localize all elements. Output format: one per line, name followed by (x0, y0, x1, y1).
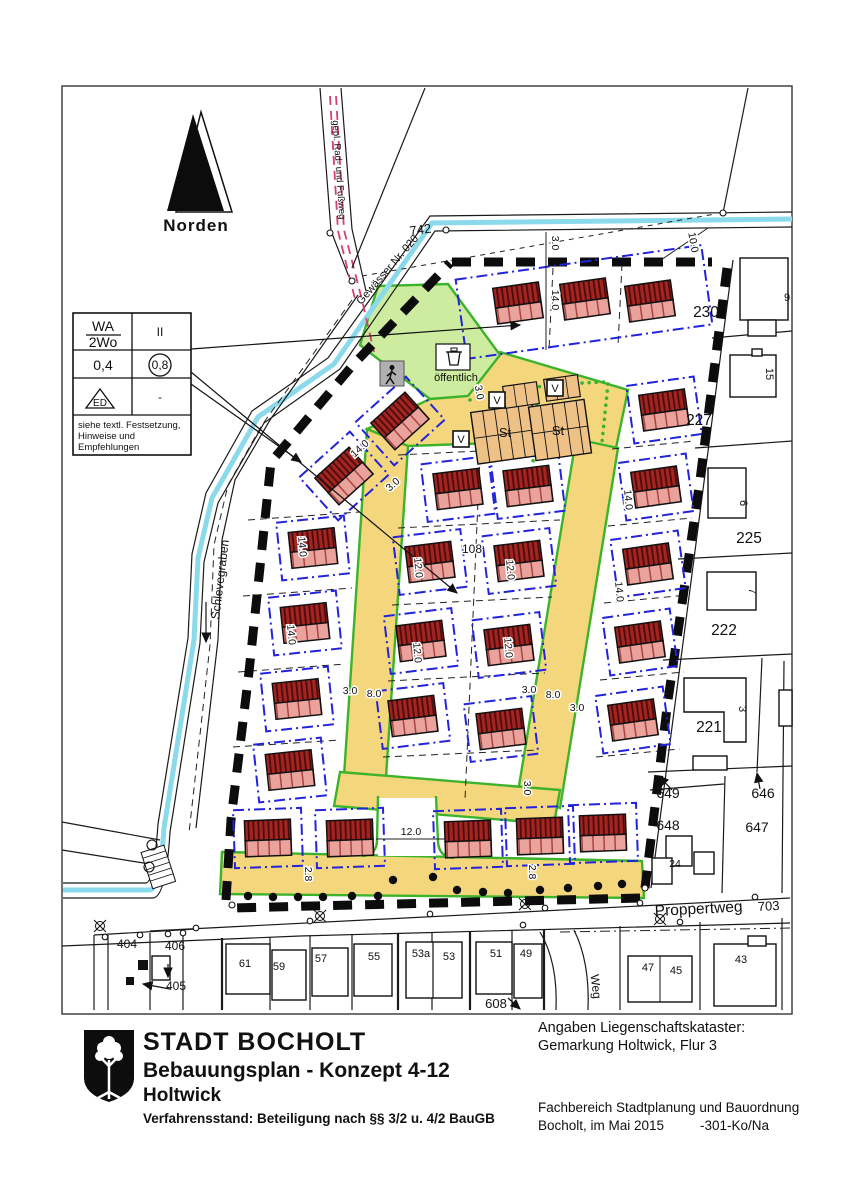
house-number-47: 47 (642, 962, 654, 974)
legend-2wo: 2Wo (89, 334, 118, 350)
planned-house (433, 468, 483, 509)
house-number-49: 49 (520, 948, 532, 960)
house-number-53a: 53a (412, 948, 431, 960)
city-coat-of-arms (84, 1030, 134, 1102)
svg-text:14.0: 14.0 (284, 624, 298, 646)
planned-house (244, 819, 291, 857)
svg-text:3.0: 3.0 (343, 685, 358, 697)
north-label: Norden (163, 216, 229, 235)
svg-text:2.8: 2.8 (526, 865, 538, 880)
planned-house (326, 819, 373, 857)
svg-text:V: V (457, 434, 465, 446)
house-number-7: 7 (746, 588, 758, 594)
legend-ed: ED (93, 398, 107, 409)
planned-house (639, 389, 690, 431)
legend-wa: WA (92, 318, 115, 334)
title-plan: Bebauungsplan - Konzept 4-12 (143, 1059, 450, 1082)
parcel-label-703: 703 (757, 898, 779, 914)
parcel-label-405: 405 (166, 979, 186, 993)
plan-map: St St V V V öffentlich (0, 0, 848, 1200)
house-number-43: 43 (735, 954, 747, 966)
planned-house (560, 278, 611, 320)
parcel-label-221: 221 (696, 719, 722, 736)
planned-house (579, 814, 626, 852)
svg-text:3.0: 3.0 (472, 384, 486, 401)
planned-house (444, 820, 491, 858)
v-marker: V (453, 431, 469, 447)
parcel-label-646: 646 (751, 785, 775, 801)
house-number-9: 9 (784, 292, 790, 304)
svg-text:3.0: 3.0 (549, 236, 561, 251)
parcel-label-647: 647 (745, 819, 769, 835)
legend-box: WA 2Wo II 0,4 0,8 ED - siehe textl. Fest… (73, 313, 191, 455)
title-city: STADT BOCHOLT (143, 1028, 366, 1056)
house-number-61: 61 (239, 958, 251, 970)
v-marker: V (489, 392, 505, 408)
public-label: öffentlich (434, 372, 478, 384)
plan-sheet: St St V V V öffentlich (0, 0, 848, 1200)
house-number-59: 59 (273, 961, 285, 973)
planned-house (288, 528, 338, 569)
svg-text:8.0: 8.0 (546, 689, 561, 701)
house-number-57: 57 (315, 953, 327, 965)
svg-text:12.0: 12.0 (401, 826, 422, 838)
parcel-label-742: 742 (409, 221, 433, 239)
planned-house (265, 750, 315, 791)
svg-text:14.0: 14.0 (612, 581, 626, 603)
planned-house (615, 621, 666, 663)
existing-house (708, 468, 746, 518)
svg-text:14.0: 14.0 (549, 290, 561, 311)
legend-floors: II (157, 325, 164, 339)
house-number-24: 24 (669, 858, 681, 870)
house-number-15: 15 (763, 368, 775, 380)
legend-note-3: Empfehlungen (78, 442, 139, 453)
house-number-51: 51 (490, 948, 502, 960)
existing-house (740, 258, 788, 320)
svg-text:12.0: 12.0 (411, 557, 425, 579)
parcel-label-222: 222 (711, 622, 737, 639)
planned-house (503, 465, 553, 506)
parcel-label-225: 225 (736, 530, 762, 547)
parcel-label-608: 608 (485, 996, 507, 1011)
cadastre-line-2: Gemarkung Holtwick, Flur 3 (538, 1038, 717, 1054)
title-status: Verfahrensstand: Beteiligung nach §§ 3/2… (143, 1111, 495, 1126)
house-number-3: 3 (736, 706, 748, 712)
parcel-label-406: 406 (165, 939, 185, 953)
pedestrian-icon (380, 361, 404, 386)
legend-note-2: Hinweise und (78, 431, 135, 442)
planned-house (476, 708, 526, 749)
house-number-6: 6 (737, 500, 749, 506)
department-line: Fachbereich Stadtplanung und Bauordnung (538, 1100, 799, 1115)
planned-house (493, 282, 544, 324)
planned-house (494, 540, 544, 581)
svg-text:14.0: 14.0 (621, 489, 635, 511)
planned-house (623, 543, 674, 585)
legend-dash: - (158, 390, 162, 404)
svg-text:V: V (493, 395, 501, 407)
planned-house (516, 817, 563, 855)
reference-code: -301-Ko/Na (700, 1118, 770, 1133)
parking-label: St (499, 425, 512, 440)
parking-label: St (552, 423, 565, 438)
svg-text:3.0: 3.0 (522, 684, 537, 696)
planned-house (388, 695, 438, 736)
place-date-line: Bocholt, im Mai 2015 (538, 1118, 664, 1133)
planned-house (625, 280, 676, 322)
parcel-label-648: 648 (656, 817, 680, 833)
svg-text:12.0: 12.0 (410, 642, 424, 664)
house-number-53: 53 (443, 951, 455, 963)
title-block: STADT BOCHOLT Bebauungsplan - Konzept 4-… (84, 1020, 799, 1133)
parcel-label-404: 404 (117, 937, 137, 951)
parcel-label-108: 108 (462, 542, 482, 556)
cadastre-line-1: Angaben Liegenschaftskataster: (538, 1020, 745, 1036)
parcel-label-230: 230 (693, 304, 719, 321)
planned-house (631, 466, 682, 508)
title-district: Holtwick (143, 1085, 222, 1106)
house-number-55: 55 (368, 951, 380, 963)
svg-text:2.8: 2.8 (302, 867, 314, 882)
parcel-label-227: 227 (686, 412, 712, 429)
parcel-label-649: 649 (656, 785, 680, 801)
legend-gfz: 0,8 (152, 358, 169, 372)
house-number-45: 45 (670, 965, 682, 977)
legend-grz: 0,4 (93, 357, 113, 373)
v-marker: V (547, 380, 563, 396)
svg-text:12.0: 12.0 (503, 559, 517, 581)
svg-text:12.0: 12.0 (501, 637, 515, 659)
street-label-weg: Weg (588, 974, 605, 1000)
svg-text:3.0: 3.0 (521, 781, 533, 796)
planned-house (272, 679, 322, 720)
planned-house (608, 699, 659, 741)
svg-text:3.0: 3.0 (570, 702, 585, 714)
legend-note-1: siehe textl. Festsetzung, (78, 420, 180, 431)
svg-text:14.0: 14.0 (295, 536, 309, 558)
svg-text:8.0: 8.0 (367, 688, 382, 700)
svg-text:V: V (551, 383, 559, 395)
